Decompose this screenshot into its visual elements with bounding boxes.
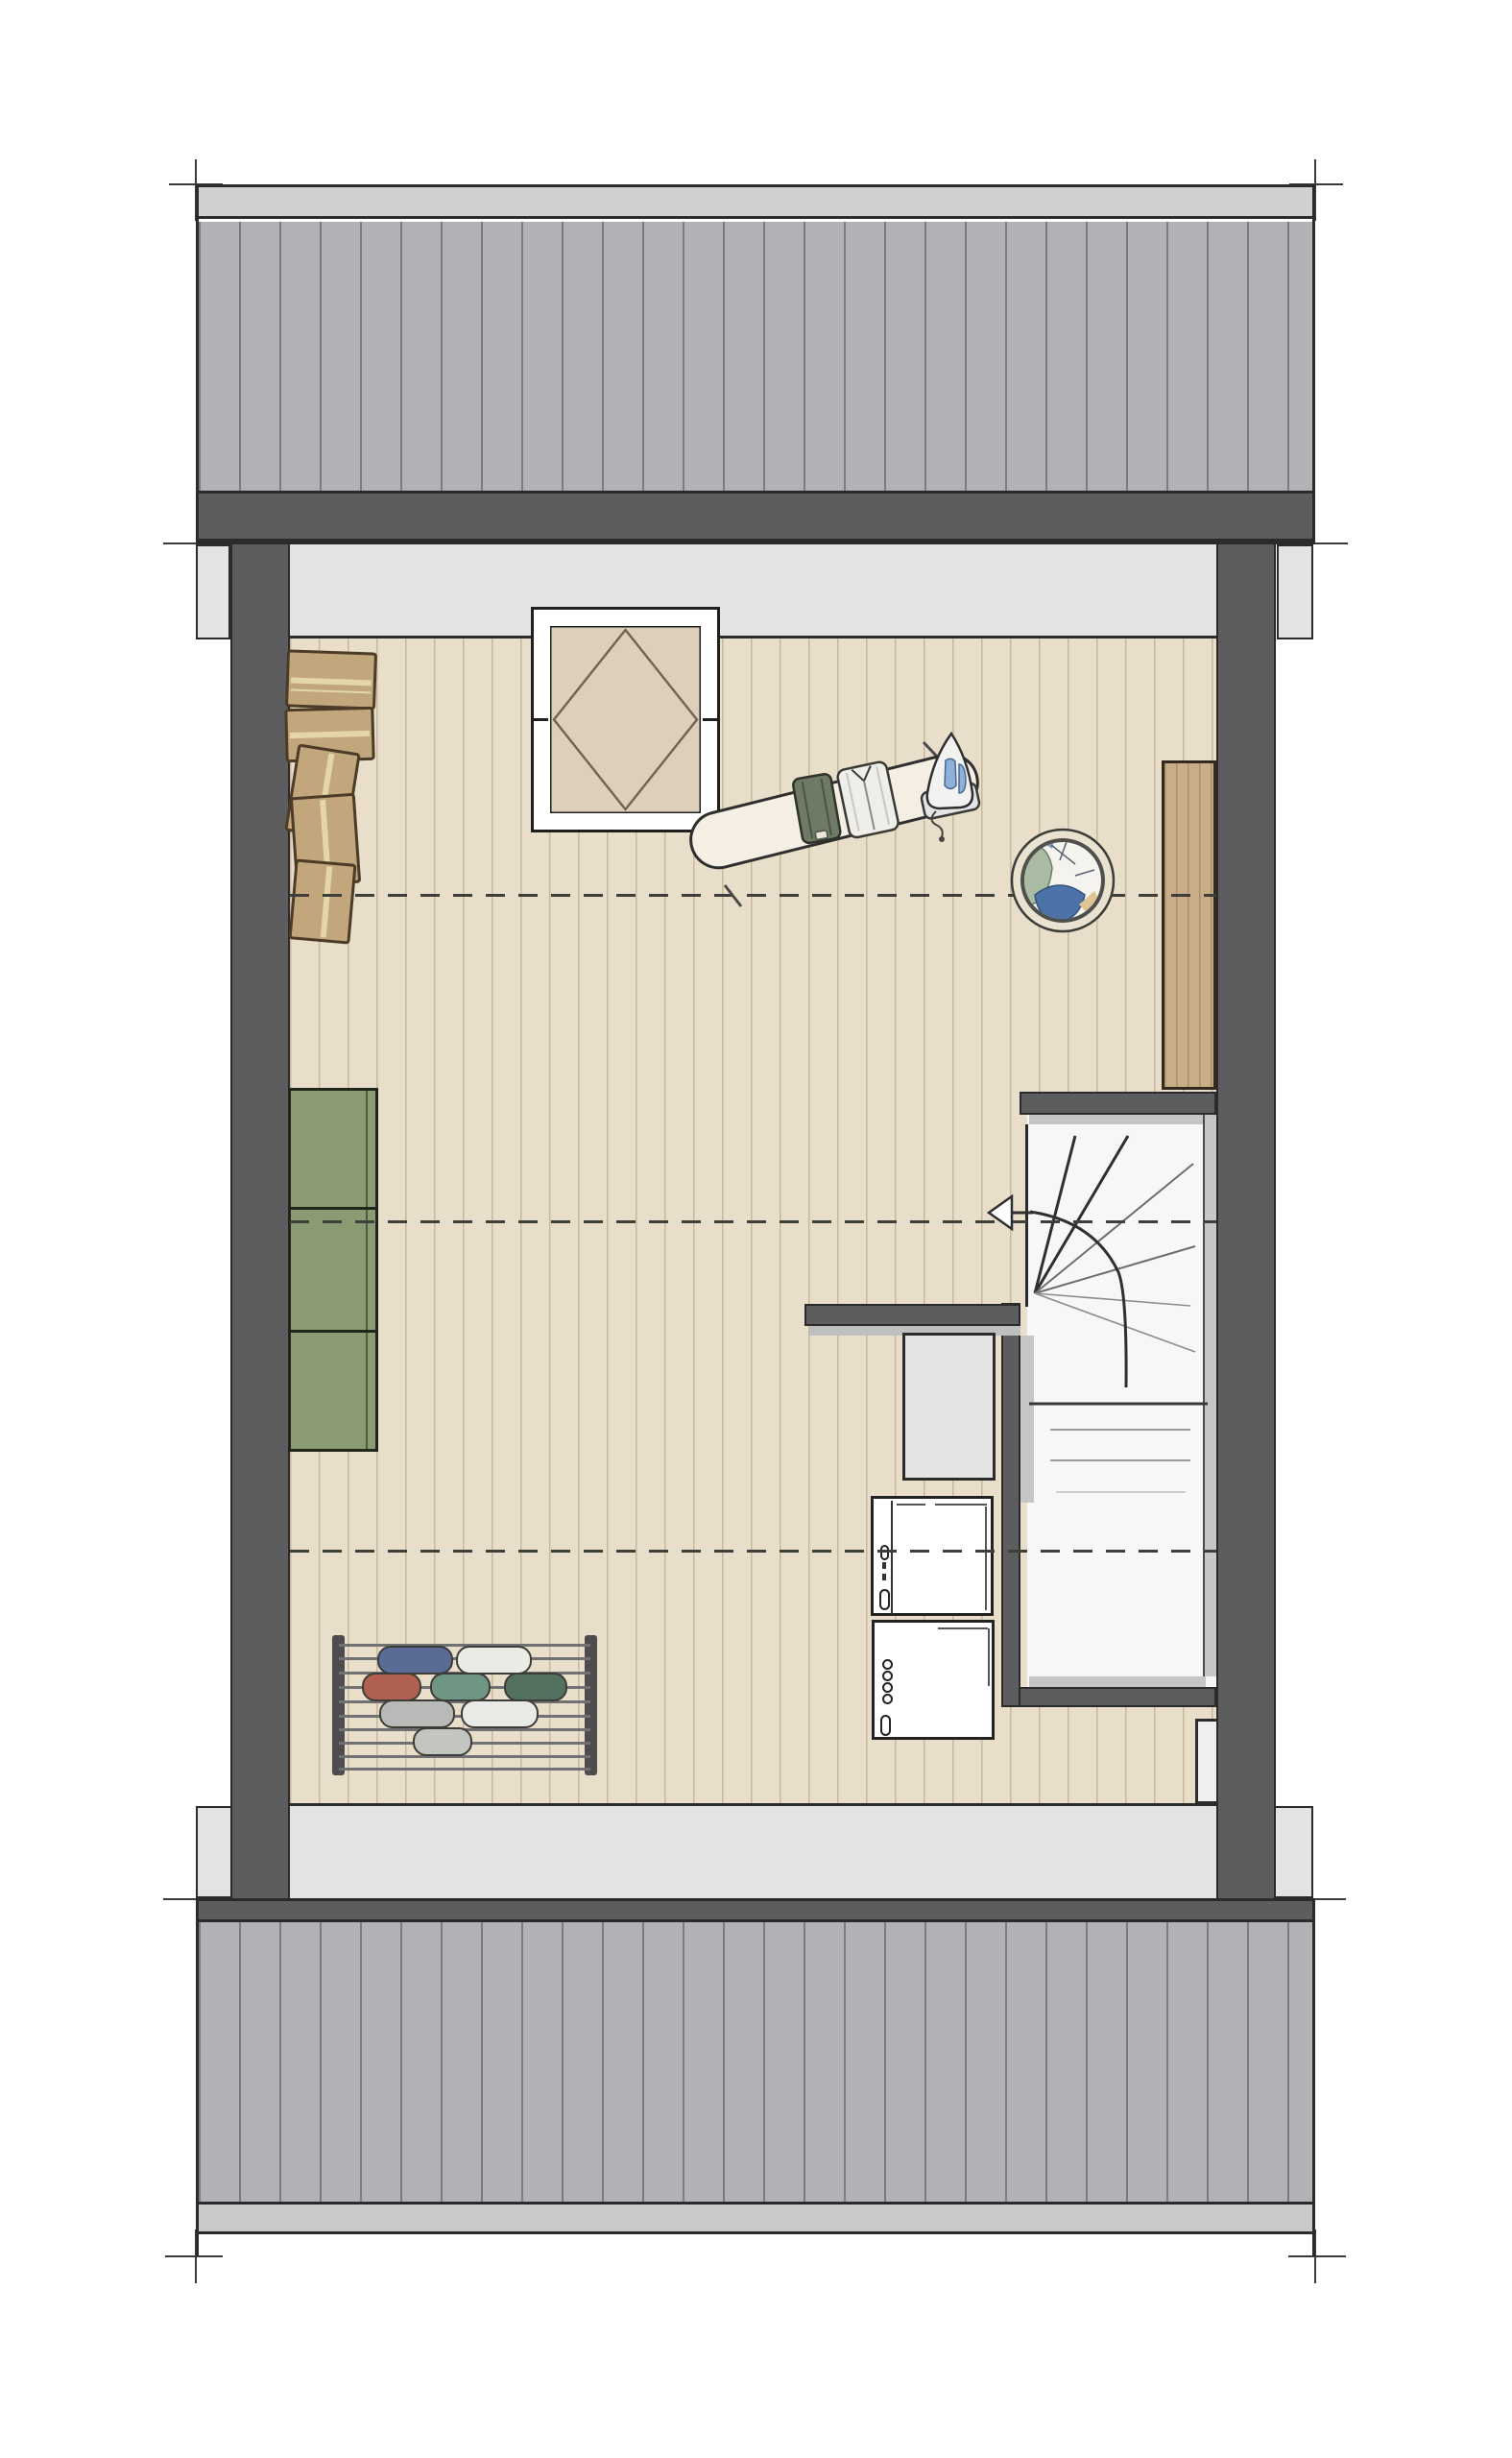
laundry-basket: [1012, 829, 1114, 931]
board-leg: [725, 885, 741, 906]
iron-plug: [939, 836, 945, 842]
attic-floor-plan: [0, 0, 1512, 2458]
direction-arrow: [989, 1196, 1033, 1229]
overlay-details: [0, 0, 1512, 2458]
board-leg: [924, 742, 938, 758]
